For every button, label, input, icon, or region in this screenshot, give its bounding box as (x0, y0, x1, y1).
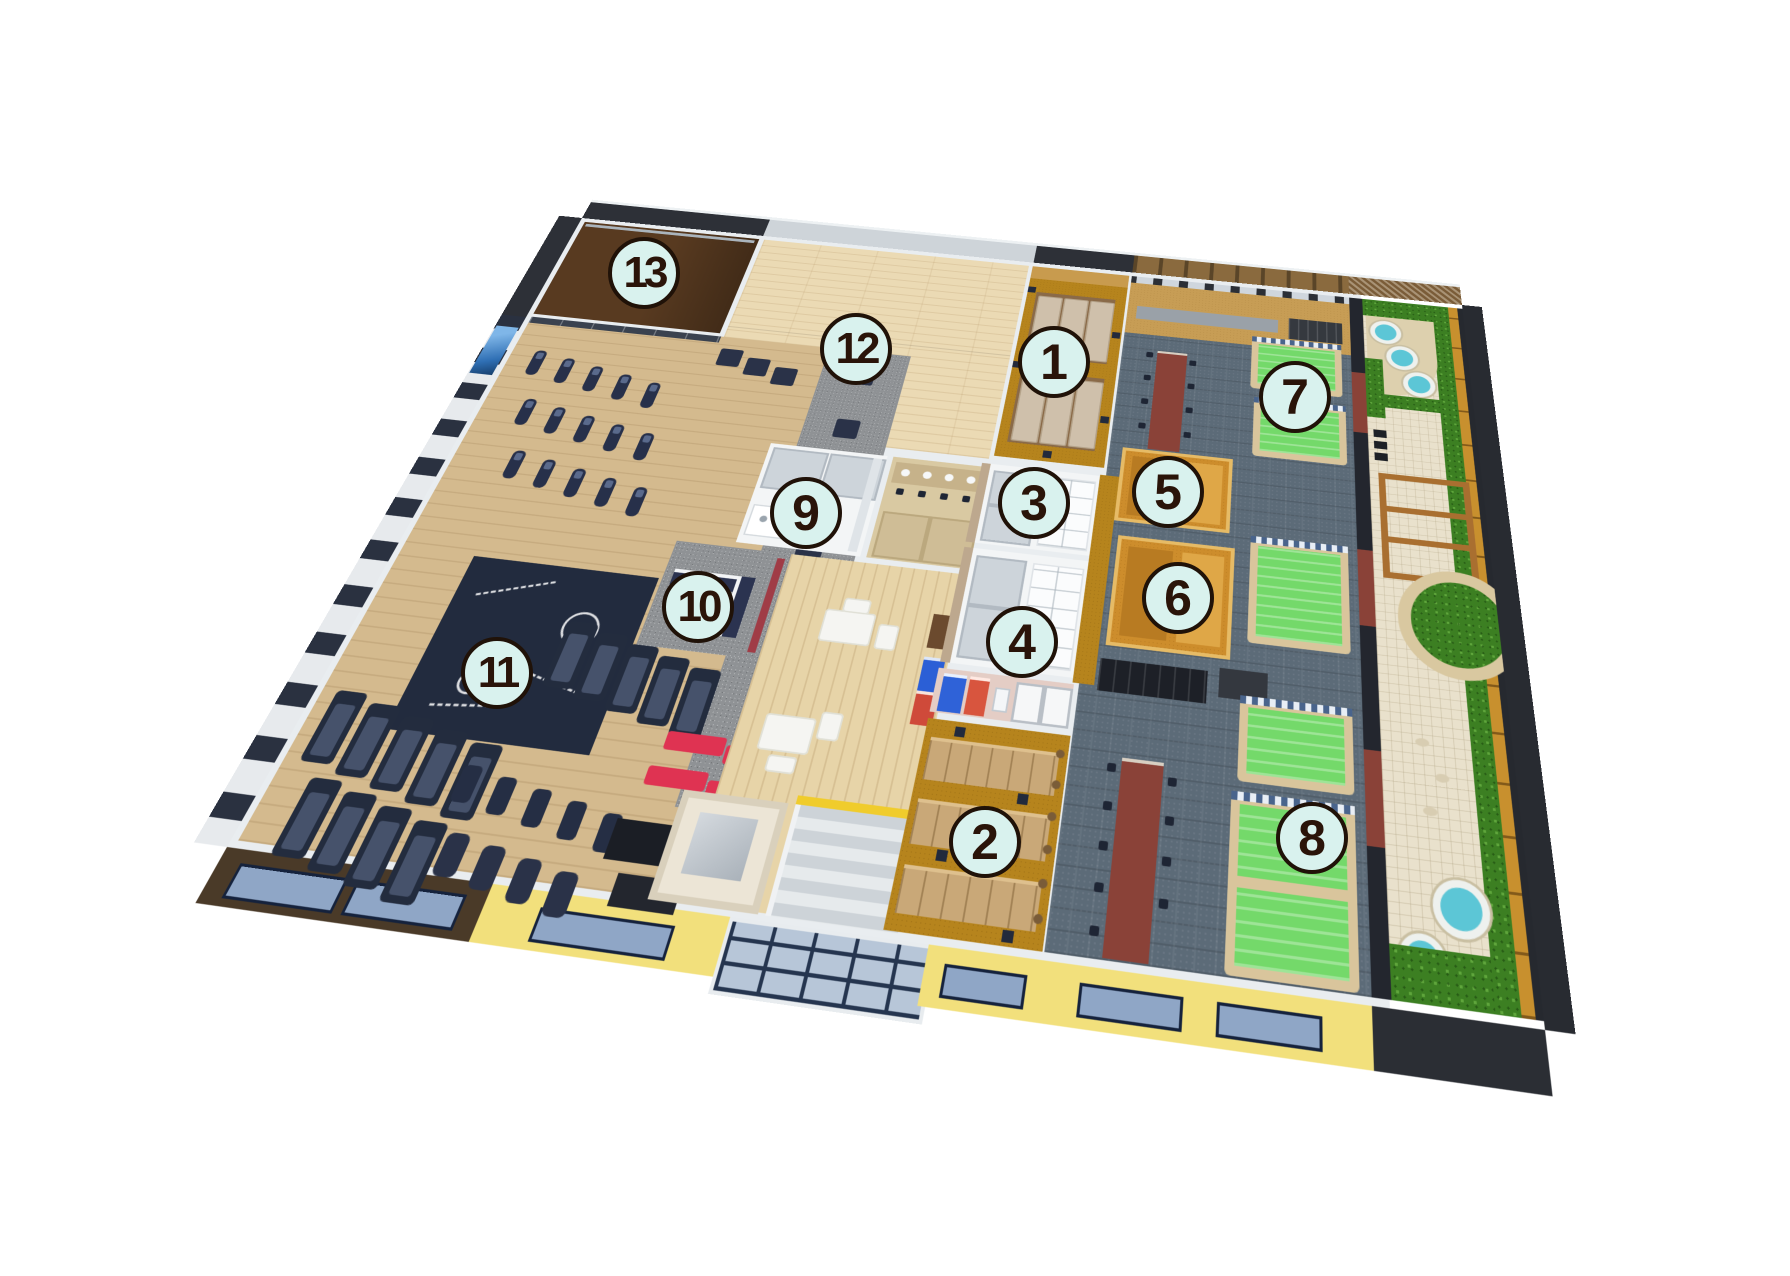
weight-machine (849, 366, 877, 385)
round-stool (1033, 913, 1044, 924)
shower-stall (967, 555, 1028, 611)
bath-stool (1158, 898, 1168, 909)
mat-doodle (452, 669, 487, 696)
door[interactable] (1039, 685, 1073, 728)
bath-pool-7 (1250, 336, 1342, 397)
weight-machine (769, 367, 798, 386)
room-4-floor (940, 547, 1090, 678)
elliptical (631, 433, 655, 461)
sofa (815, 711, 844, 742)
bath-stool (1168, 777, 1177, 787)
pergola-beam (1388, 536, 1469, 551)
sink (779, 518, 789, 525)
washing-station-row (1102, 758, 1164, 965)
water-cooler (991, 687, 1010, 713)
vending-machine[interactable] (963, 676, 990, 716)
sofa (873, 624, 900, 652)
floorplan-projection (194, 218, 1553, 1099)
elliptical (524, 350, 549, 375)
vanity-counter (743, 504, 834, 544)
vanity-stool (917, 491, 926, 498)
facility-3d-floorplan: 12345678910111213 (0, 0, 1790, 1276)
bath-stool (1162, 856, 1172, 867)
bath-cabinet (1097, 658, 1208, 704)
elliptical (638, 382, 662, 408)
elliptical (609, 374, 633, 400)
room-6-sauna (1106, 535, 1235, 660)
bath-stool (1183, 432, 1191, 438)
elliptical (561, 468, 587, 498)
pool-water (1246, 707, 1345, 786)
front-window (1216, 1002, 1323, 1052)
stone-bed-platform (1007, 370, 1105, 451)
bath-stool (1189, 360, 1196, 366)
vanity-stool (940, 493, 949, 500)
mat-doodle (476, 581, 556, 595)
locker-stool (1017, 793, 1029, 805)
bath-stool (1187, 383, 1194, 389)
bath-stool (1089, 925, 1100, 936)
lockers (1036, 476, 1096, 551)
elliptical (531, 459, 558, 488)
washing-station-row (1147, 351, 1187, 452)
basin (966, 476, 976, 484)
bath-stool (1143, 375, 1150, 381)
sauna-bench (1126, 456, 1175, 519)
stepping-stone (1415, 737, 1429, 747)
bath-stool (1138, 422, 1146, 428)
bath-pool-8 (1224, 791, 1360, 994)
sofa (842, 597, 873, 614)
locker-stool (1001, 930, 1014, 944)
bath-stool (1141, 398, 1149, 404)
exercise-bike (555, 800, 589, 841)
exercise-bike (519, 788, 554, 828)
front-window (1076, 983, 1183, 1033)
room-5-sauna (1114, 447, 1233, 533)
vanity-counter (891, 462, 985, 493)
elevator-cab (681, 812, 759, 881)
vanity-stool (962, 496, 971, 503)
chair (708, 612, 718, 620)
sofa (756, 713, 817, 756)
locker-stool (954, 726, 966, 737)
washroom-stall (760, 447, 830, 494)
basin (944, 474, 954, 482)
lounge-chair (1374, 452, 1388, 461)
vending-machine[interactable] (937, 673, 968, 714)
locker-bank (895, 864, 1042, 932)
mat-doodle (429, 703, 491, 707)
stepping-stone (1435, 773, 1450, 783)
shower-stall (980, 505, 1036, 547)
shower-stall (987, 470, 1042, 510)
basin (900, 469, 911, 477)
weight-machine (742, 357, 771, 376)
weight-machine (832, 418, 861, 439)
bath-stool (1146, 352, 1153, 358)
locker-bank (922, 737, 1059, 796)
pool-water (1257, 344, 1335, 391)
desk (683, 604, 709, 621)
stone-bed-platform (1024, 292, 1116, 364)
elliptical (513, 398, 539, 425)
hedge (1389, 943, 1495, 1014)
sofa (764, 754, 798, 775)
round-hot-tub (1386, 345, 1419, 372)
round-stool (1051, 780, 1061, 790)
sink (759, 515, 769, 522)
bath-pool-8 (1237, 695, 1354, 796)
round-hot-tub (1402, 371, 1436, 399)
wash-counter (1136, 306, 1278, 333)
lounge-chair (1373, 429, 1386, 438)
round-stool (1042, 844, 1052, 855)
pool-water (1260, 405, 1340, 459)
sofa (817, 608, 877, 646)
locker-stool (935, 849, 948, 862)
weight-machine (715, 348, 744, 367)
spa-stool (1012, 361, 1021, 368)
hedge (1365, 358, 1386, 419)
pool-water (1256, 546, 1343, 647)
round-stool (1038, 878, 1049, 889)
pergola (1378, 473, 1480, 589)
round-hot-tub (1370, 320, 1402, 346)
sauna-bench (1176, 552, 1225, 647)
bath-stool (1107, 763, 1117, 773)
bath-pool-7 (1252, 397, 1347, 466)
elliptical (623, 487, 648, 517)
elliptical (501, 450, 528, 479)
bath-stool (1098, 840, 1108, 850)
bath-stool (1165, 816, 1175, 826)
sauna-bench (1119, 546, 1173, 641)
exercise-bike (484, 776, 519, 816)
shower-stall (956, 605, 1019, 664)
lounge-chair (1374, 441, 1387, 450)
elliptical (542, 407, 568, 434)
front-window (939, 964, 1028, 1010)
lockers (1016, 563, 1084, 671)
sauna-bench (1179, 462, 1223, 526)
bath-pool-mid (1247, 536, 1351, 655)
front-wall-garden (1372, 1006, 1553, 1096)
room-3-floor (965, 463, 1101, 556)
basin (922, 471, 933, 479)
bath-stool (1103, 801, 1113, 811)
stepping-stone (1423, 806, 1438, 817)
pergola-beam (1387, 506, 1467, 520)
spa-stool (1100, 416, 1109, 424)
elliptical (580, 366, 604, 392)
elliptical (571, 415, 596, 443)
spa-stool (1042, 450, 1052, 458)
spa-stool (1112, 332, 1121, 339)
bath-stool (1094, 882, 1104, 893)
elliptical (552, 358, 577, 384)
elliptical (601, 424, 626, 452)
round-stool (1055, 749, 1065, 759)
round-stool (1047, 812, 1057, 822)
sink (800, 520, 809, 527)
bath-stool (1185, 407, 1192, 413)
spa-stool (1028, 286, 1037, 292)
vanity-stool (895, 488, 904, 495)
elliptical (592, 477, 618, 507)
locker-bank (909, 798, 1051, 861)
